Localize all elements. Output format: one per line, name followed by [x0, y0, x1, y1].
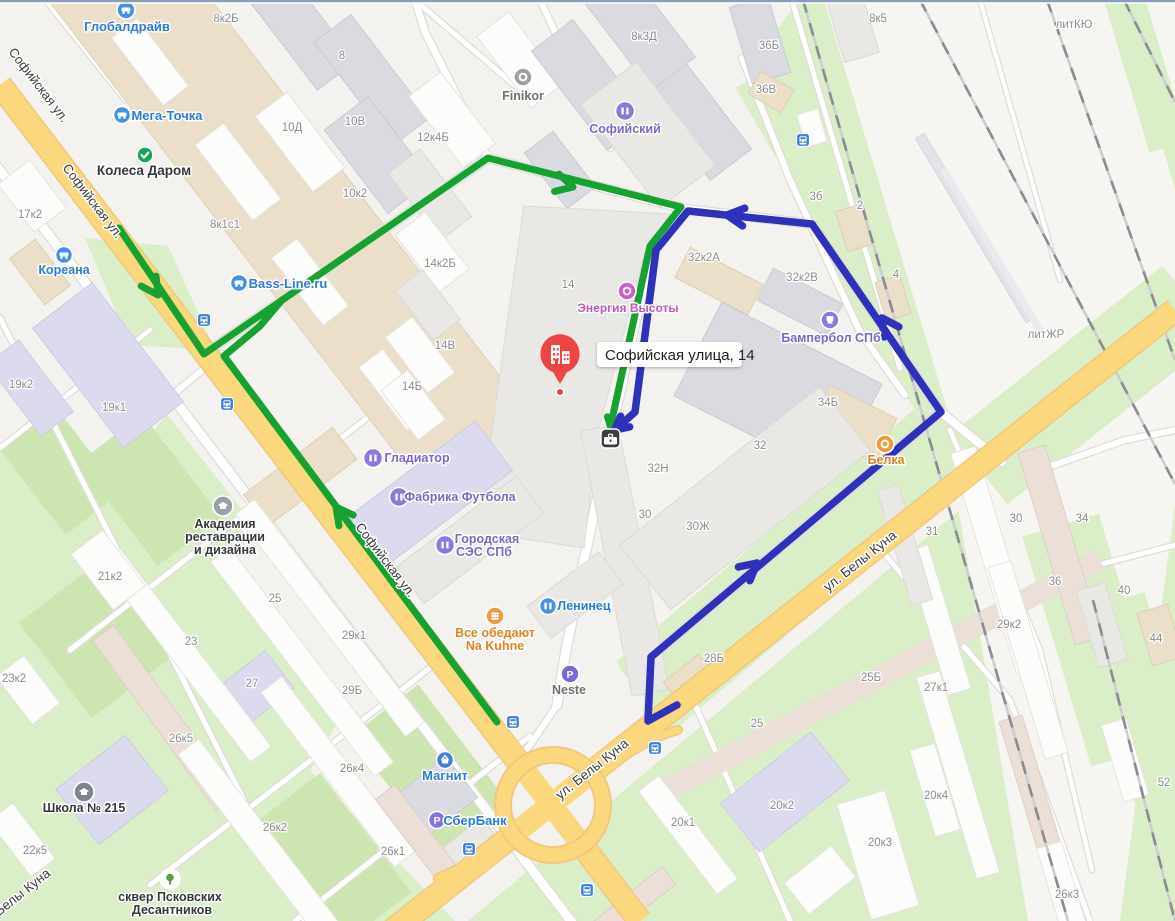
svg-text:26к5: 26к5: [169, 733, 193, 745]
svg-text:21к2: 21к2: [98, 571, 122, 583]
svg-text:4: 4: [893, 269, 900, 281]
svg-text:20к2: 20к2: [770, 800, 794, 812]
svg-text:25: 25: [751, 718, 764, 730]
svg-text:19к2: 19к2: [9, 379, 33, 391]
svg-text:Ленинец: Ленинец: [557, 599, 610, 613]
svg-text:Белка: Белка: [867, 453, 905, 467]
svg-text:28Б: 28Б: [704, 653, 724, 665]
svg-text:30: 30: [1010, 513, 1023, 525]
svg-text:34: 34: [1076, 513, 1089, 525]
svg-text:Магнит: Магнит: [422, 768, 468, 783]
svg-text:44: 44: [1150, 633, 1163, 645]
svg-text:23к2: 23к2: [2, 673, 26, 685]
svg-text:Na Kuhne: Na Kuhne: [466, 639, 524, 653]
svg-text:P: P: [433, 815, 440, 827]
svg-text:Колеса Даром: Колеса Даром: [97, 163, 191, 178]
svg-text:25: 25: [269, 593, 282, 605]
svg-text:14Б: 14Б: [402, 381, 422, 393]
svg-text:29к2: 29к2: [997, 619, 1021, 631]
svg-text:14: 14: [562, 279, 575, 291]
svg-text:8: 8: [339, 50, 345, 62]
svg-text:26к3: 26к3: [1055, 889, 1079, 901]
svg-text:32к2В: 32к2В: [786, 272, 818, 284]
svg-text:Бампербол СПб: Бампербол СПб: [781, 331, 881, 345]
svg-text:Глобалдрайв: Глобалдрайв: [84, 19, 170, 34]
svg-text:Городская: Городская: [455, 532, 519, 546]
svg-text:30Ж: 30Ж: [686, 521, 710, 533]
svg-text:8к2Б: 8к2Б: [213, 13, 238, 25]
svg-text:26к2: 26к2: [263, 822, 287, 834]
svg-text:19к1: 19к1: [102, 402, 126, 414]
svg-text:12к4Б: 12к4Б: [417, 132, 449, 144]
svg-text:52: 52: [1158, 777, 1171, 789]
svg-text:8к5: 8к5: [869, 13, 887, 25]
svg-text:Десантников: Десантников: [132, 903, 213, 917]
svg-text:32: 32: [754, 440, 767, 452]
svg-text:8к3Д: 8к3Д: [631, 31, 657, 43]
svg-text:29Б: 29Б: [342, 685, 362, 697]
svg-text:10В: 10В: [345, 116, 366, 128]
svg-text:30: 30: [639, 509, 652, 521]
svg-text:14В: 14В: [435, 340, 456, 352]
svg-text:26к1: 26к1: [381, 846, 405, 858]
svg-text:32к2А: 32к2А: [688, 252, 720, 264]
svg-text:и дизайна: и дизайна: [194, 543, 257, 557]
svg-text:20к3: 20к3: [868, 837, 892, 849]
svg-text:27к1: 27к1: [924, 682, 948, 694]
svg-text:Neste: Neste: [552, 683, 586, 697]
svg-text:Школа № 215: Школа № 215: [43, 801, 126, 815]
svg-text:Мега-Точка: Мега-Точка: [131, 108, 203, 123]
svg-text:Академия: Академия: [194, 517, 255, 531]
svg-text:Bass-Line.ru: Bass-Line.ru: [249, 276, 328, 291]
svg-text:40: 40: [1118, 585, 1131, 597]
svg-text:сквер Псковских: сквер Псковских: [118, 890, 222, 904]
svg-text:32Н: 32Н: [647, 463, 668, 475]
svg-text:литКЮ: литКЮ: [1056, 19, 1093, 31]
svg-text:22к5: 22к5: [23, 845, 47, 857]
svg-text:10к2: 10к2: [343, 188, 367, 200]
svg-text:СберБанк: СберБанк: [443, 813, 507, 828]
svg-text:36Б: 36Б: [759, 40, 779, 52]
svg-text:17к2: 17к2: [18, 209, 42, 221]
svg-text:36В: 36В: [756, 84, 777, 96]
svg-text:14к2Б: 14к2Б: [424, 258, 456, 270]
svg-text:31: 31: [926, 526, 939, 538]
svg-text:СЭС СПб: СЭС СПб: [456, 545, 512, 559]
svg-text:Finikor: Finikor: [502, 89, 544, 103]
svg-text:Фабрика Футбола: Фабрика Футбола: [404, 490, 516, 504]
svg-text:26к4: 26к4: [340, 763, 365, 775]
svg-text:литЖР: литЖР: [1028, 329, 1065, 341]
svg-text:Софийская улица, 14: Софийская улица, 14: [605, 347, 755, 364]
svg-text:P: P: [566, 669, 573, 681]
svg-text:25Б: 25Б: [861, 672, 881, 684]
svg-text:10Д: 10Д: [282, 122, 303, 134]
svg-text:Кореана: Кореана: [38, 263, 90, 277]
svg-text:Гладиатор: Гладиатор: [384, 451, 450, 465]
svg-text:Софийский: Софийский: [589, 122, 661, 136]
svg-text:23: 23: [185, 636, 198, 648]
svg-text:Энергия Высоты: Энергия Высоты: [577, 301, 678, 315]
svg-text:8к1с1: 8к1с1: [210, 219, 240, 231]
svg-text:Все обедают: Все обедают: [455, 626, 535, 640]
svg-text:34Б: 34Б: [818, 397, 838, 409]
svg-text:3б: 3б: [810, 191, 823, 203]
svg-text:36: 36: [1049, 576, 1062, 588]
svg-text:20к1: 20к1: [671, 817, 695, 829]
svg-text:29к1: 29к1: [342, 630, 366, 642]
svg-text:реставрации: реставрации: [185, 530, 265, 544]
svg-text:2: 2: [857, 200, 863, 212]
svg-text:27: 27: [246, 678, 259, 690]
svg-text:20к4: 20к4: [924, 790, 949, 802]
